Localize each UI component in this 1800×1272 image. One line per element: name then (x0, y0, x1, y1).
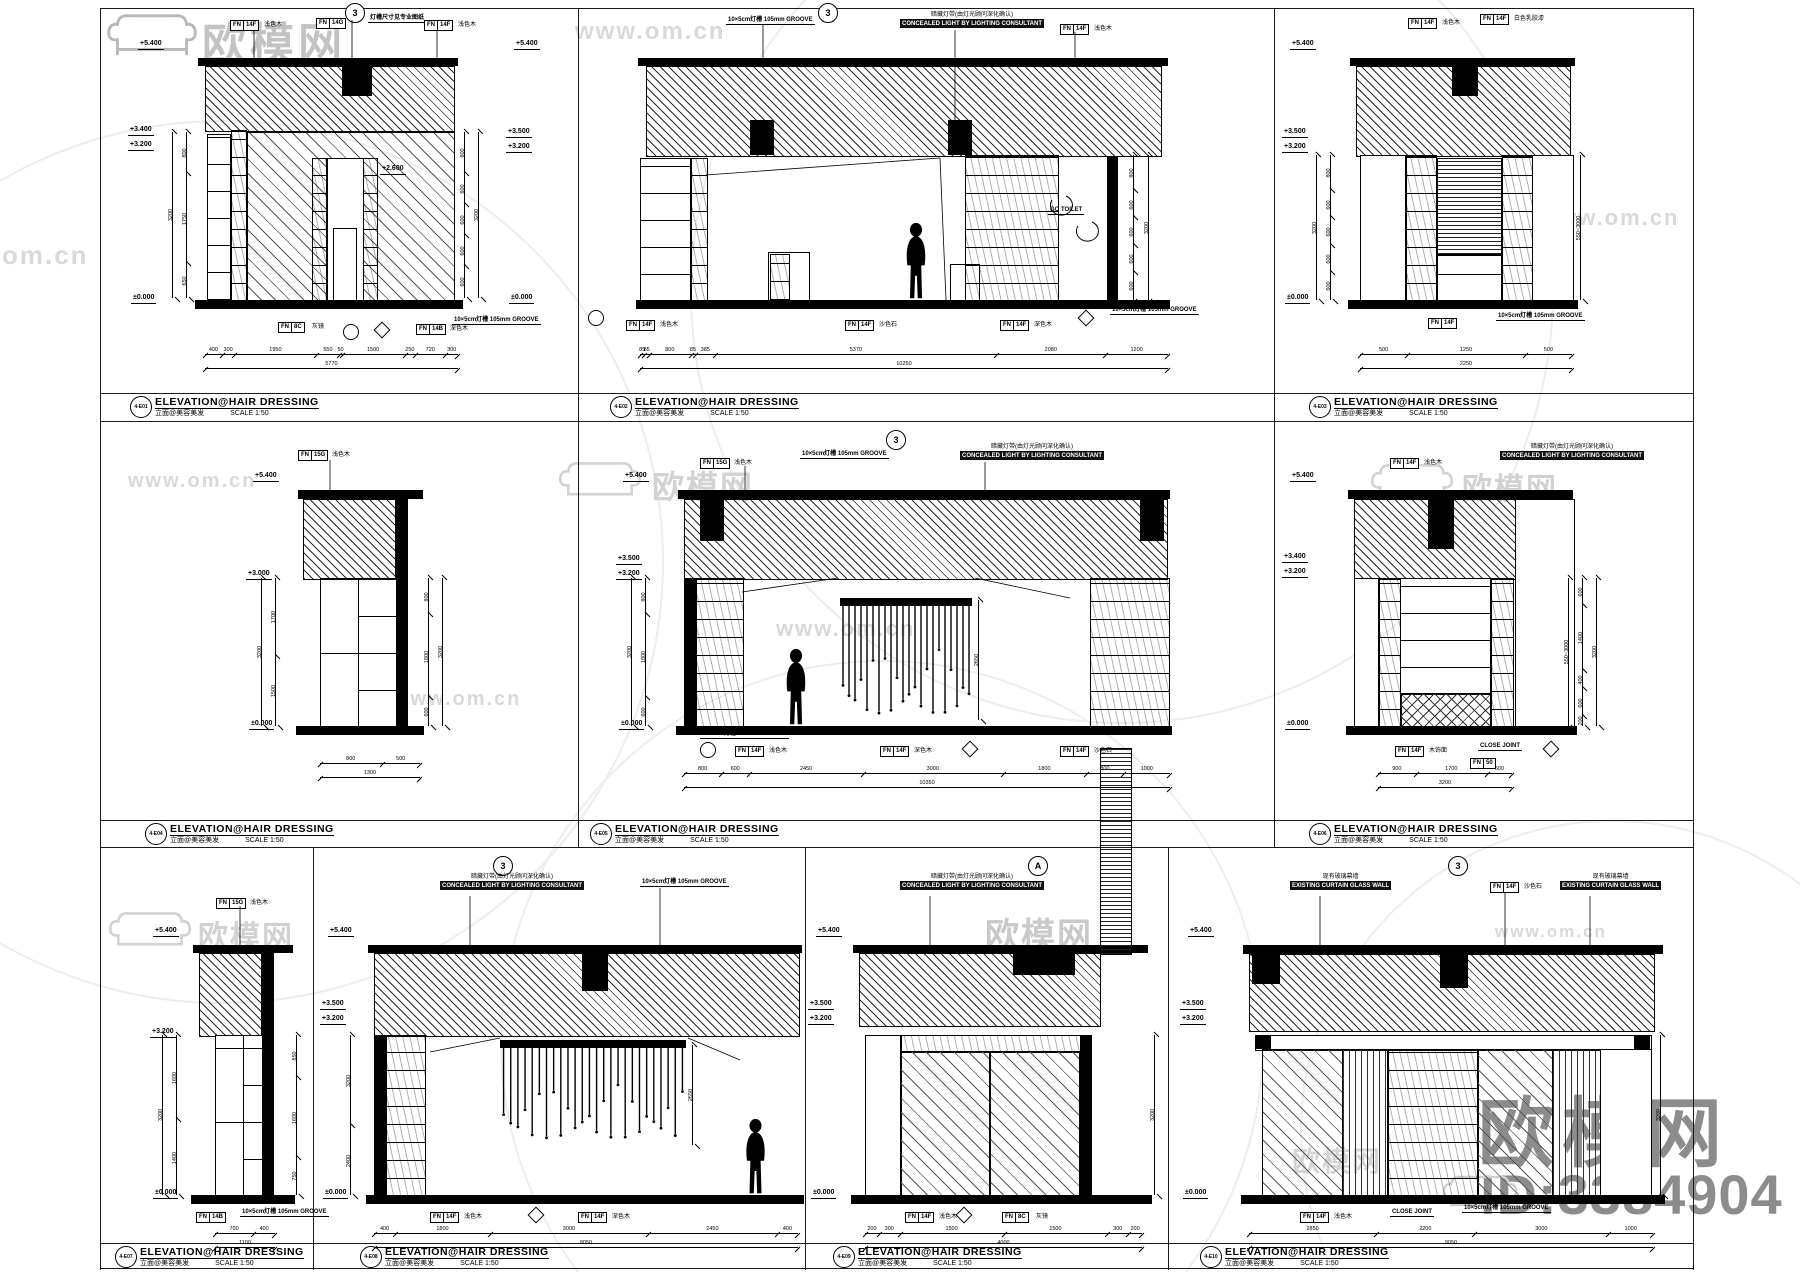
line-overlay (0, 0, 1800, 1272)
cad-sheet: www.om.cn www.om.cn om.cn www.om.cn 欧模网 … (0, 0, 1800, 1272)
